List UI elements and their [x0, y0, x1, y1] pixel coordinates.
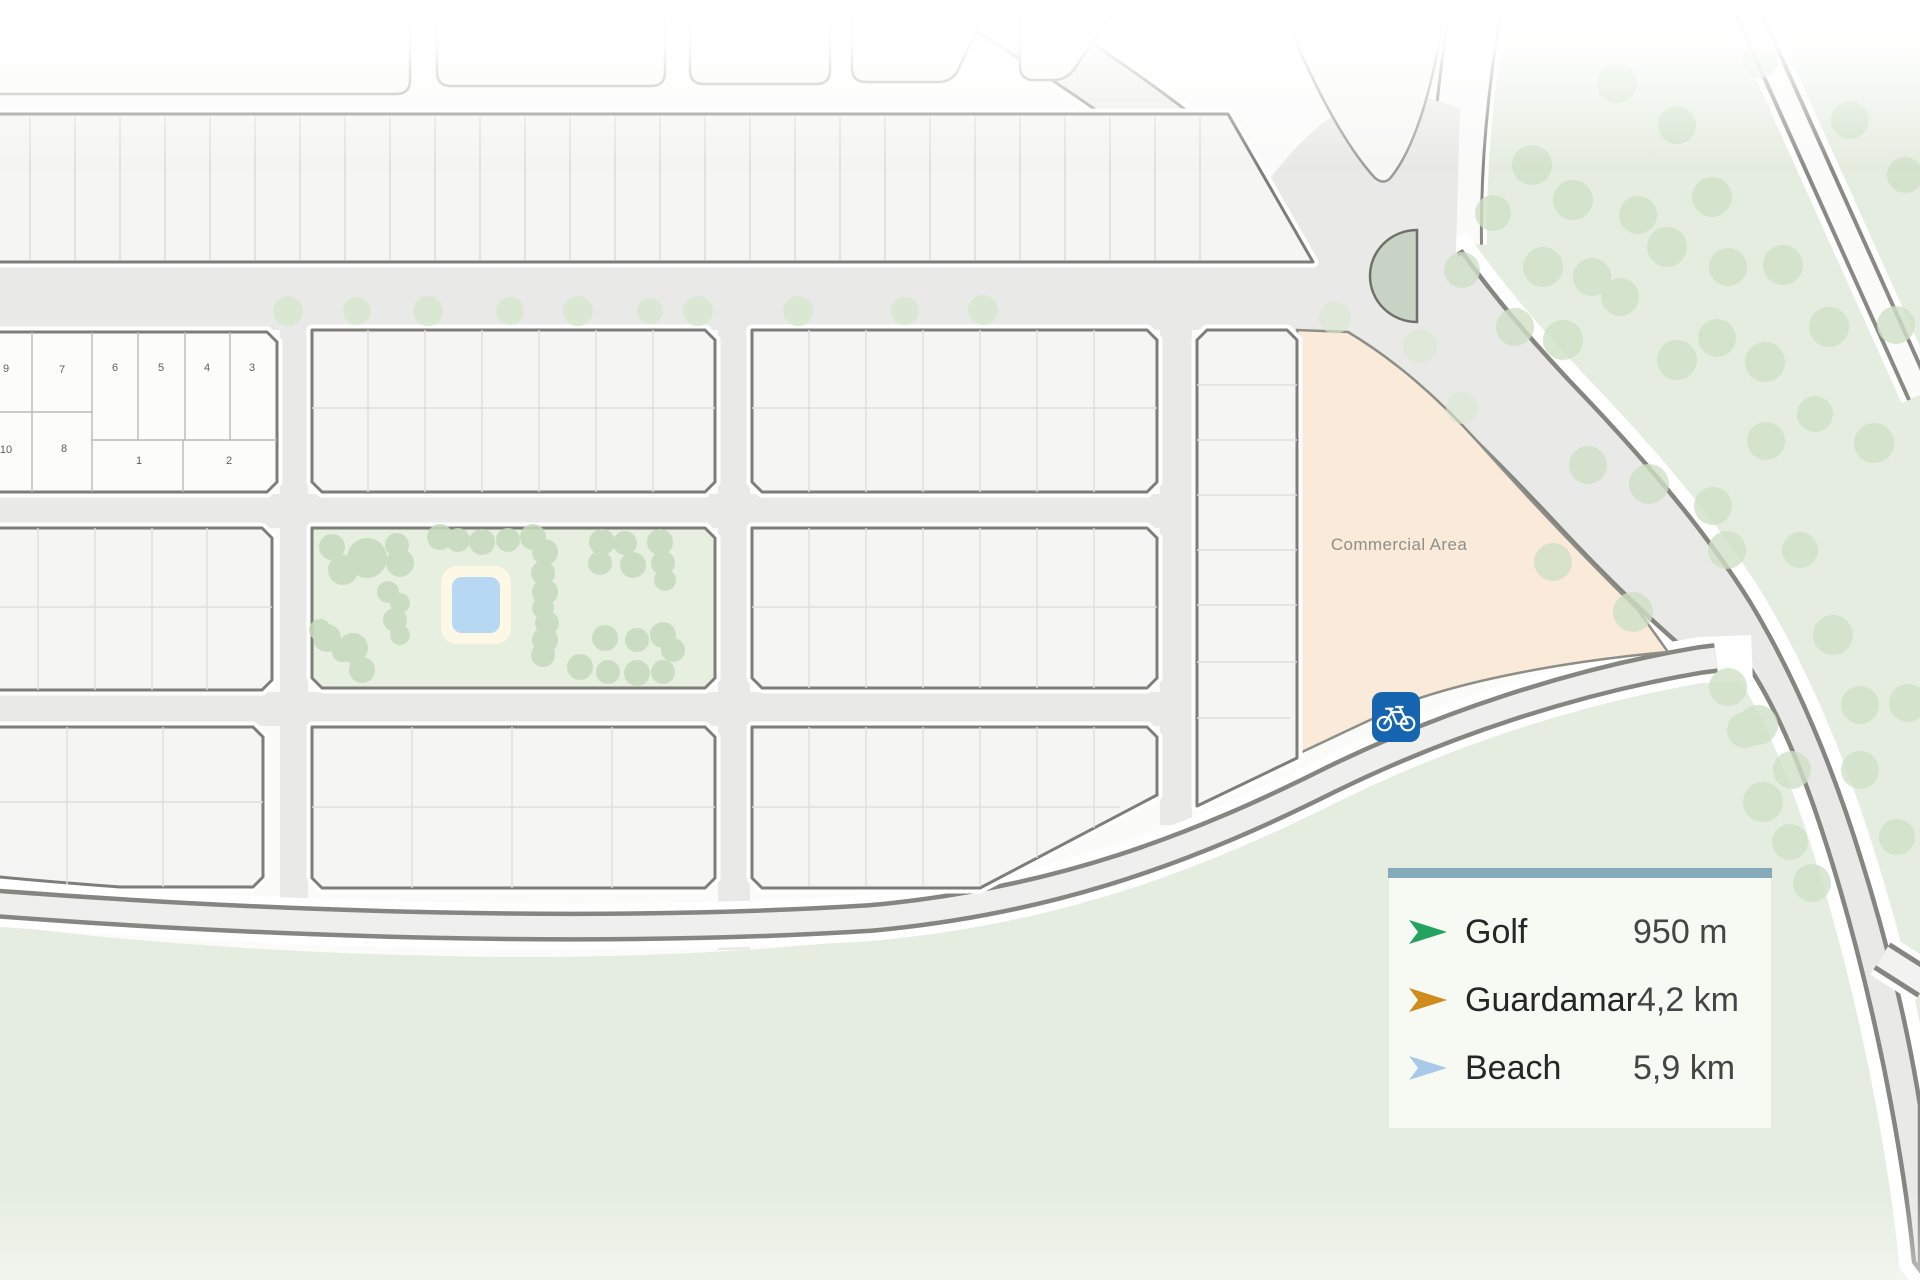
bicycle-glyph [1376, 702, 1416, 732]
plot-number: 3 [249, 362, 255, 374]
park-block [309, 524, 715, 688]
vertical-road-2 [718, 262, 750, 950]
block-col1-row3 [0, 727, 263, 887]
arrow-marker-icon [1409, 1053, 1447, 1083]
vertical-road-3 [1160, 330, 1192, 825]
numbered-block [0, 332, 277, 492]
plot-number: 1 [136, 455, 142, 467]
right-plot-column [1197, 330, 1297, 806]
plot-number: 10 [0, 444, 12, 456]
bicycle-sign-icon [1372, 692, 1420, 742]
distance-legend: Golf 950 m Guardamar 4,2 km Beach 5,9 km [1388, 868, 1772, 1129]
block-col1-row2 [0, 528, 272, 690]
legend-distance: 4,2 km [1637, 981, 1739, 1020]
plot-number: 7 [59, 364, 65, 376]
main-horizontal-road [0, 262, 1336, 330]
legend-row-guardamar: Guardamar 4,2 km [1409, 966, 1751, 1034]
plot-number: 4 [204, 362, 210, 374]
block-col3-row1 [752, 330, 1157, 492]
legend-row-beach: Beach 5,9 km [1409, 1034, 1751, 1102]
arrow-marker-icon [1409, 917, 1447, 947]
plot-number: 6 [112, 362, 118, 374]
commercial-area-label: Commercial Area [1331, 535, 1467, 555]
vertical-road-1 [280, 262, 308, 930]
legend-row-golf: Golf 950 m [1409, 898, 1751, 966]
plot-number: 2 [226, 455, 232, 467]
strip-block [0, 114, 1313, 262]
pool [441, 566, 511, 644]
arrow-marker-icon [1409, 985, 1447, 1015]
site-plan-page: Commercial Area 9 7 6 5 4 3 10 8 1 2 Gol… [0, 0, 1920, 1280]
legend-body: Golf 950 m Guardamar 4,2 km Beach 5,9 km [1388, 878, 1772, 1129]
legend-distance: 5,9 km [1633, 1049, 1735, 1088]
legend-label: Golf [1465, 913, 1633, 952]
legend-accent-bar [1388, 868, 1772, 878]
block-col2-row1 [312, 330, 715, 492]
legend-label: Beach [1465, 1049, 1633, 1088]
right-branch-road [1882, 956, 1920, 984]
block-col3-row2 [752, 528, 1157, 688]
plot-number: 9 [3, 363, 9, 375]
legend-distance: 950 m [1633, 913, 1728, 952]
plot-number: 5 [158, 362, 164, 374]
legend-label: Guardamar [1465, 981, 1637, 1020]
plot-number: 8 [61, 443, 67, 455]
horizontal-road-3 [0, 692, 1192, 726]
block-col2-row3 [312, 727, 715, 888]
